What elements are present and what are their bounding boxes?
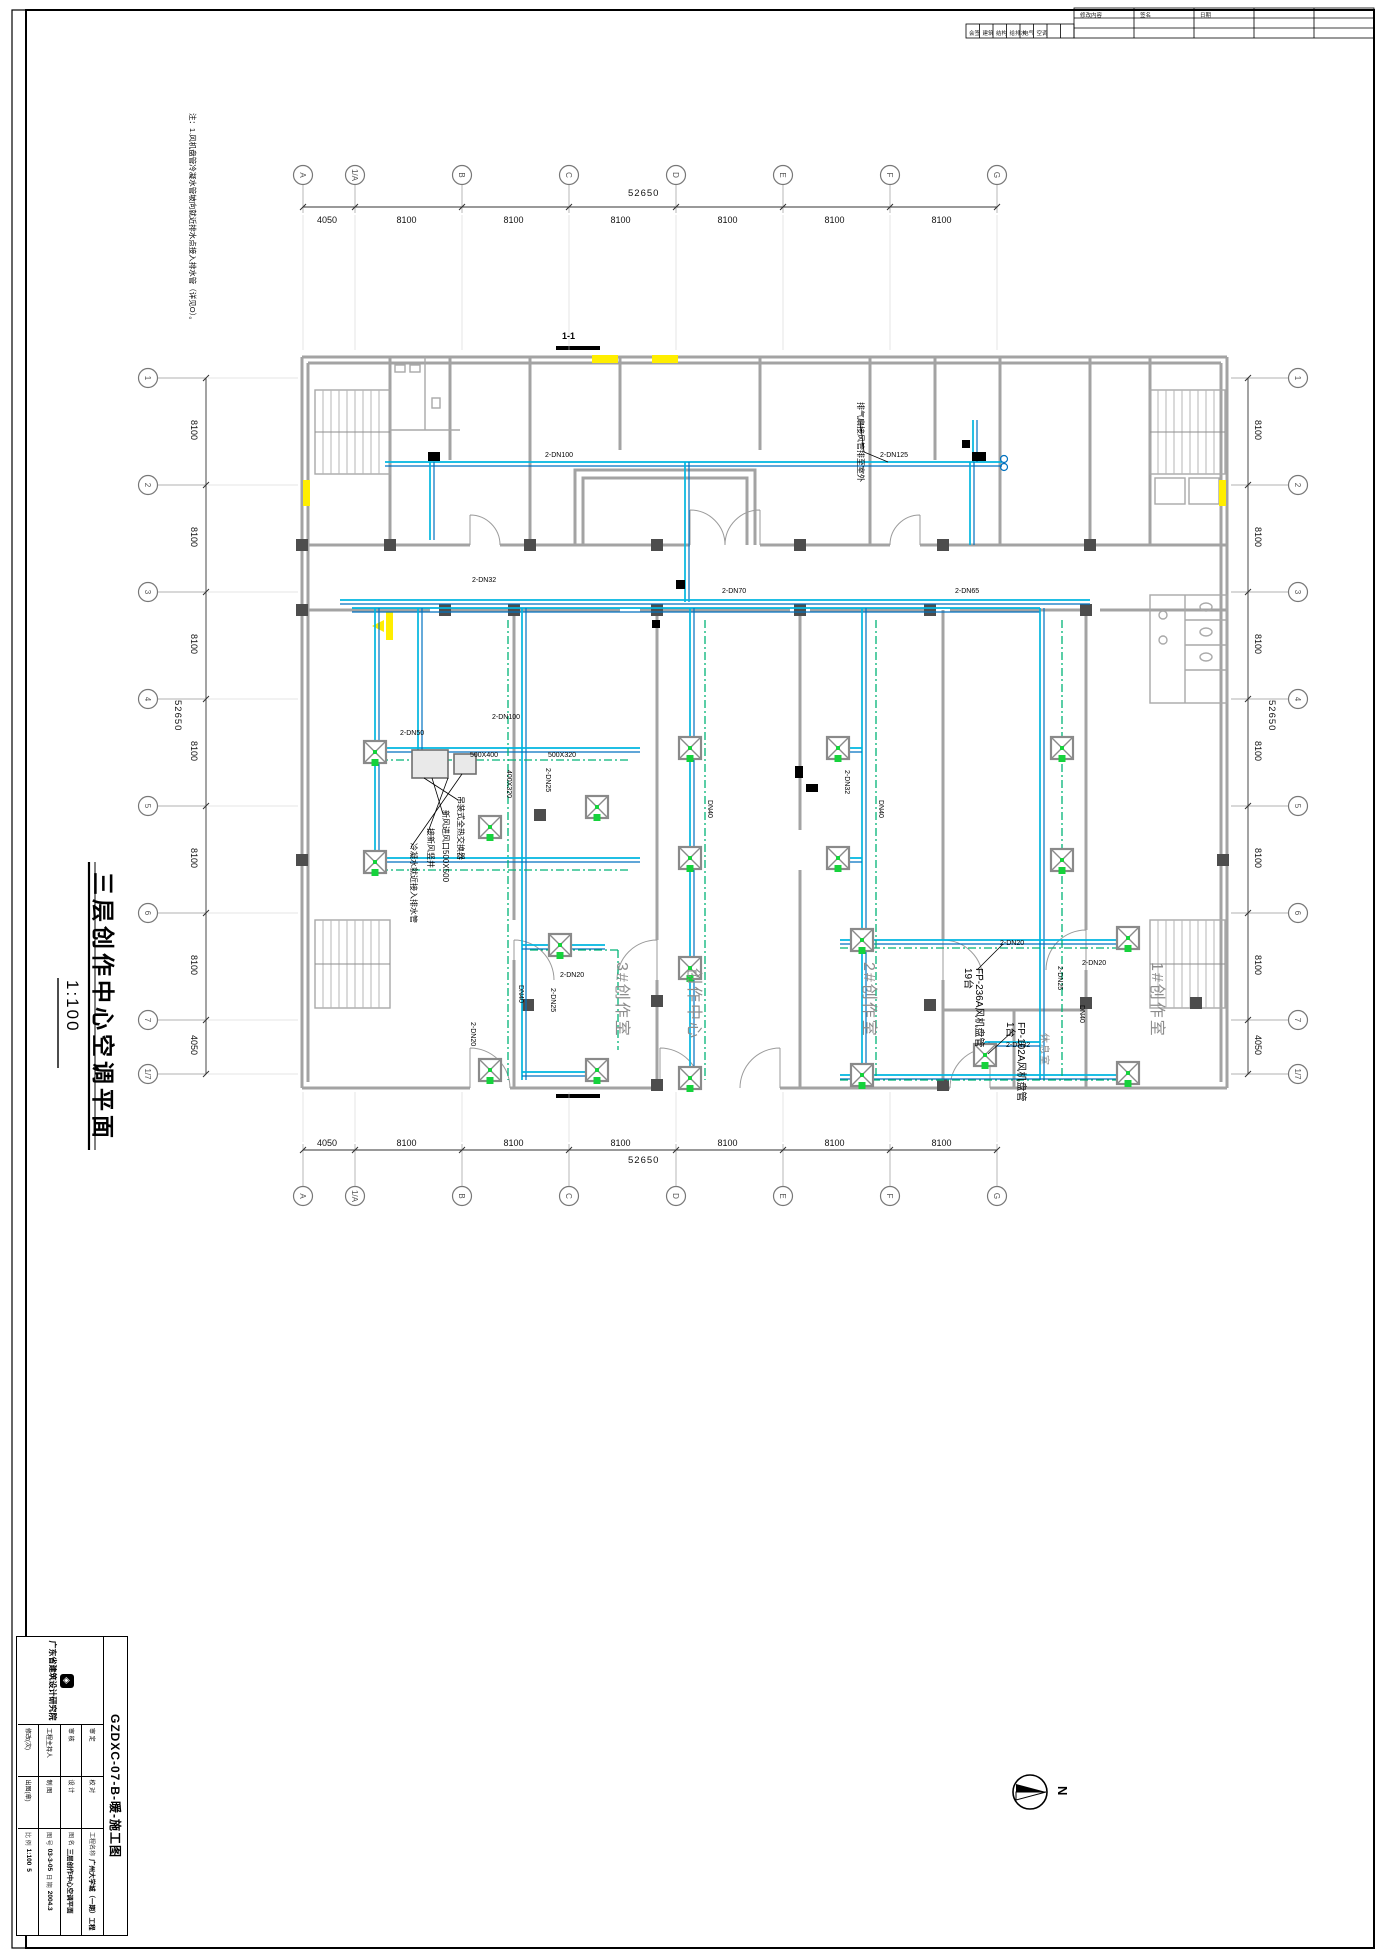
- dim-total-top: 52650: [628, 189, 659, 199]
- column: [651, 1079, 663, 1091]
- leader-lines: [411, 420, 1014, 1054]
- dim-top-segment: 8100: [825, 216, 845, 225]
- pipe-size-label: 2-DN125: [880, 452, 908, 459]
- pipe-risers: [1001, 456, 1008, 471]
- dim-left-segment: 8100: [189, 634, 198, 654]
- drawing-no: 03-3-05: [46, 1849, 53, 1871]
- air-diffuser: [827, 737, 849, 762]
- pipe-size-label: 2-DN65: [955, 588, 979, 595]
- column: [296, 539, 308, 551]
- column: [1084, 539, 1096, 551]
- revision-table-header: 签名: [1140, 11, 1151, 19]
- air-diffuser: [827, 847, 849, 872]
- air-diffuser: [479, 1059, 501, 1084]
- dim-right-segment: 8100: [1253, 420, 1262, 440]
- dim-bottom-segment: 8100: [397, 1139, 417, 1148]
- air-diffuser: [1117, 927, 1139, 952]
- dim-bottom-segment: 8100: [825, 1139, 845, 1148]
- grid-bubble-label: E: [778, 172, 787, 177]
- pipe-size-label: 2-DN20: [560, 972, 584, 979]
- pipe-size-label: 2-DN100: [545, 452, 573, 459]
- revision-table-header: 修改内容: [1080, 11, 1102, 19]
- signature-field: 设 计: [60, 1777, 82, 1829]
- pipe-size-label: 2-DN50: [400, 730, 424, 737]
- section-mark-bottom: [556, 1094, 600, 1098]
- column: [651, 539, 663, 551]
- column: [937, 1079, 949, 1091]
- air-diffuser: [1051, 849, 1073, 874]
- air-diffuser: [364, 851, 386, 876]
- dim-top-segment: 8100: [504, 216, 524, 225]
- air-diffuser: [974, 1044, 996, 1069]
- equipment-callout-3: 接新风竖井: [425, 828, 436, 868]
- column: [924, 999, 936, 1011]
- signature-field: 审 定: [82, 1725, 104, 1777]
- column: [508, 604, 520, 616]
- drawing-scale: 1:100: [62, 980, 82, 1033]
- grid-bubble-label: 4: [143, 697, 152, 702]
- pipe-size-label: DN40: [877, 800, 884, 818]
- room-label: 3#创作室: [612, 962, 636, 1038]
- pipe-size-label: 2-DN20: [1082, 960, 1106, 967]
- column: [937, 539, 949, 551]
- room-label: 创作中心: [684, 968, 708, 1040]
- air-diffuser: [549, 934, 571, 959]
- equipment-callout-4: 冷凝水就近接入排水管: [408, 843, 419, 923]
- dim-bottom-segment: 8100: [504, 1139, 524, 1148]
- dim-bottom-segment: 4050: [317, 1139, 337, 1148]
- general-note: 注：1.风机盘管冷凝水管坡向就近排水点接入排水管（详见O）。: [187, 113, 198, 324]
- pipe-size-label: DN40: [1078, 1005, 1085, 1023]
- air-diffuser: [586, 1059, 608, 1084]
- grid-bubble-label: 1: [1293, 376, 1302, 381]
- pipe-size-label: DN40: [517, 985, 524, 1003]
- grid-bubble-label: A: [298, 172, 307, 178]
- grid-bubble-label: D: [671, 172, 680, 178]
- chilled-water-pipes: [340, 420, 1130, 1080]
- sign-strip-cell: 空调: [1037, 29, 1048, 37]
- grid-bubble-label: 1/A: [350, 1190, 359, 1203]
- grid-bubble-label: C: [564, 172, 573, 178]
- signature-field: 修改(次): [18, 1725, 39, 1777]
- grid-bubble-label: E: [778, 1193, 787, 1198]
- room-label: 1#创作室: [1147, 962, 1171, 1038]
- dim-top-segment: 8100: [718, 216, 738, 225]
- pipe-size-label: 2-DN20: [469, 1022, 476, 1046]
- elevator-1: [1155, 478, 1185, 504]
- pipe-size-label: DN40: [706, 800, 713, 818]
- air-diffuser: [851, 929, 873, 954]
- air-diffuser: [586, 796, 608, 821]
- column: [296, 854, 308, 866]
- column: [794, 539, 806, 551]
- page-number: 5: [25, 1868, 32, 1872]
- dim-bottom-segment: 8100: [611, 1139, 631, 1148]
- grid-bubble-label: 6: [143, 911, 152, 916]
- sign-strip-cell: 电气: [1023, 29, 1034, 37]
- grid-bubble-label: A: [298, 1193, 307, 1199]
- structural-columns: [296, 539, 1229, 1091]
- grid-bubble-label: 2: [1293, 483, 1302, 488]
- elevator-2: [1189, 478, 1219, 504]
- sign-strip-cell: 结构: [996, 29, 1007, 37]
- dim-total-bottom: 52650: [628, 1156, 659, 1166]
- column: [924, 604, 936, 616]
- signature-field: 工程主持人: [39, 1725, 61, 1777]
- dim-total-right: 52650: [1267, 700, 1277, 731]
- drawing-no-label: 图 号: [45, 1832, 54, 1846]
- pipe-size-label: 400X320: [505, 770, 512, 798]
- grid-bubble-label: 1/A: [350, 169, 359, 182]
- date-value: 2004.3: [46, 1891, 53, 1911]
- air-diffuser: [679, 847, 701, 872]
- pipe-size-label: 2-DN32: [472, 577, 496, 584]
- axis-grid: AA1/A1/ABBCCDDEEFFGG112233445566771/71/7: [139, 166, 1308, 1206]
- dim-left-segment: 8100: [189, 955, 198, 975]
- dim-total-left: 52650: [173, 700, 183, 731]
- signature-fields: 审 定校 对审 核设 计工程主持人制 图修改(次)出图(章): [18, 1725, 103, 1829]
- column: [296, 604, 308, 616]
- dim-bottom-segment: 8100: [932, 1139, 952, 1148]
- project-name: 广州大学城（一期）工程: [88, 1859, 98, 1931]
- drawing-title: 三层创作中心空调平面: [88, 872, 122, 1142]
- pipe-size-label: 500X320: [548, 752, 576, 759]
- grid-bubble-label: 1: [143, 376, 152, 381]
- column: [1190, 997, 1202, 1009]
- grid-bubble-label: F: [885, 173, 894, 178]
- scale-label: 比 例: [24, 1832, 33, 1846]
- pipe-size-label: 2-DN25: [1056, 966, 1063, 990]
- signature-field: 校 对: [82, 1777, 104, 1829]
- grid-bubble-label: 3: [1293, 590, 1302, 595]
- dim-right-segment: 8100: [1253, 527, 1262, 547]
- air-diffuser: [679, 737, 701, 762]
- signature-field: 审 核: [60, 1725, 82, 1777]
- air-diffuser: [479, 816, 501, 841]
- air-diffuser: [1051, 737, 1073, 762]
- dim-right-segment: 8100: [1253, 955, 1262, 975]
- grid-bubble-label: 3: [143, 590, 152, 595]
- highlight-marks: [303, 355, 1226, 640]
- grid-bubble-label: 4: [1293, 697, 1302, 702]
- pipe-size-label: 2-DN20: [1000, 940, 1024, 947]
- company-logo: ◈: [60, 1674, 74, 1688]
- pipe-size-label: 500X400: [470, 752, 498, 759]
- column: [794, 604, 806, 616]
- pipe-size-label: 2-DN32: [843, 770, 850, 794]
- drawing-name-label: 图 名: [67, 1832, 76, 1846]
- project-label: 工程名称: [88, 1832, 97, 1856]
- column: [439, 604, 451, 616]
- north-label: N: [1055, 1786, 1070, 1795]
- signature-field: 制 图: [39, 1777, 61, 1829]
- dim-left-segment: 8100: [189, 420, 198, 440]
- building-walls: [302, 357, 1227, 1088]
- pipe-size-label: 2-DN25: [544, 768, 551, 792]
- door-swings: [470, 510, 1086, 1088]
- grid-bubble-label: G: [992, 172, 1001, 178]
- grid-bubble-label: 7: [1293, 1018, 1302, 1023]
- fcu-callout-236: FP-236A风机盘管19台: [962, 968, 984, 1047]
- scale-value: 1:100: [25, 1849, 32, 1866]
- column: [1217, 854, 1229, 866]
- grid-bubble-label: B: [457, 172, 466, 177]
- fresh-air-unit: [412, 750, 476, 778]
- date-label: 日 期: [45, 1874, 54, 1888]
- equipment-callout-2: 新风进风口500X500: [440, 810, 451, 882]
- air-diffuser: [1117, 1062, 1139, 1087]
- room-label: 2#创作室: [859, 962, 883, 1038]
- title-block: GZDXC-07-B-暖-施工图 ◈ 广东省建筑设计研究院 审 定校 对审 核设…: [16, 1636, 128, 1936]
- dim-top-segment: 4050: [317, 216, 337, 225]
- dim-right-segment: 8100: [1253, 741, 1262, 761]
- dim-left-segment: 8100: [189, 527, 198, 547]
- air-diffuser: [851, 1064, 873, 1089]
- grid-bubble-label: 5: [1293, 804, 1302, 809]
- column: [384, 539, 396, 551]
- equipment-callout-1: 吊装式全热交换器: [455, 796, 466, 860]
- grid-bubble-label: C: [564, 1193, 573, 1199]
- grid-bubble-label: 6: [1293, 911, 1302, 916]
- grid-bubble-label: 5: [143, 804, 152, 809]
- revision-table-header: 日期: [1200, 11, 1211, 19]
- column: [1080, 604, 1092, 616]
- dim-top-segment: 8100: [932, 216, 952, 225]
- grid-bubble-label: D: [671, 1193, 680, 1199]
- drawing-sheet: AA1/A1/ABBCCDDEEFFGG112233445566771/71/7…: [0, 0, 1386, 1959]
- section-mark-top: [556, 346, 600, 350]
- title-block-info: 工程名称 广州大学城（一期）工程 图 名 三层创作中心空调平面 图 号 03-3…: [18, 1829, 103, 1935]
- air-diffuser: [364, 741, 386, 766]
- dim-left-segment: 4050: [189, 1035, 198, 1055]
- drawing-serial-number: GZDXC-07-B-暖-施工图: [103, 1637, 127, 1935]
- pipe-size-label: 2-DN25: [549, 988, 556, 1012]
- sign-strip-cell: 建筑: [983, 29, 994, 37]
- pipe-size-label: 2-DN100: [492, 714, 520, 721]
- grid-bubble-label: 2: [143, 483, 152, 488]
- column: [534, 809, 546, 821]
- drawing-name: 三层创作中心空调平面: [66, 1849, 76, 1914]
- fcu-callout-102: FP-102A风机盘管1台: [1004, 1022, 1026, 1101]
- north-arrow: [1013, 1775, 1047, 1809]
- column: [524, 539, 536, 551]
- grid-bubble-label: 1/7: [143, 1068, 152, 1080]
- pipe-size-label: 2-DN70: [722, 588, 746, 595]
- room-label: 休息室: [1038, 1033, 1053, 1066]
- grid-bubble-label: F: [885, 1194, 894, 1199]
- dim-right-segment: 8100: [1253, 848, 1262, 868]
- dim-top-segment: 8100: [397, 216, 417, 225]
- exhaust-fan-callout: 排气扇接风管排至室外: [855, 402, 866, 482]
- dim-right-segment: 4050: [1253, 1035, 1262, 1055]
- dim-left-segment: 8100: [189, 741, 198, 761]
- signature-field: 出图(章): [18, 1777, 39, 1829]
- pipe-size-label: 2-DN32: [1006, 1042, 1030, 1049]
- section-label: 1-1: [562, 331, 575, 341]
- air-diffuser: [679, 1067, 701, 1092]
- company-name: 广东省建筑设计研究院: [47, 1641, 57, 1721]
- grid-bubble-label: 7: [143, 1018, 152, 1023]
- sign-strip-cell: 会签: [969, 29, 980, 37]
- grid-bubble-label: 1/7: [1293, 1068, 1302, 1080]
- dim-top-segment: 8100: [611, 216, 631, 225]
- dim-bottom-segment: 8100: [718, 1139, 738, 1148]
- column: [651, 604, 663, 616]
- dim-right-segment: 8100: [1253, 634, 1262, 654]
- dim-left-segment: 8100: [189, 848, 198, 868]
- column: [651, 995, 663, 1007]
- grid-bubble-label: G: [992, 1193, 1001, 1199]
- grid-bubble-label: B: [457, 1193, 466, 1198]
